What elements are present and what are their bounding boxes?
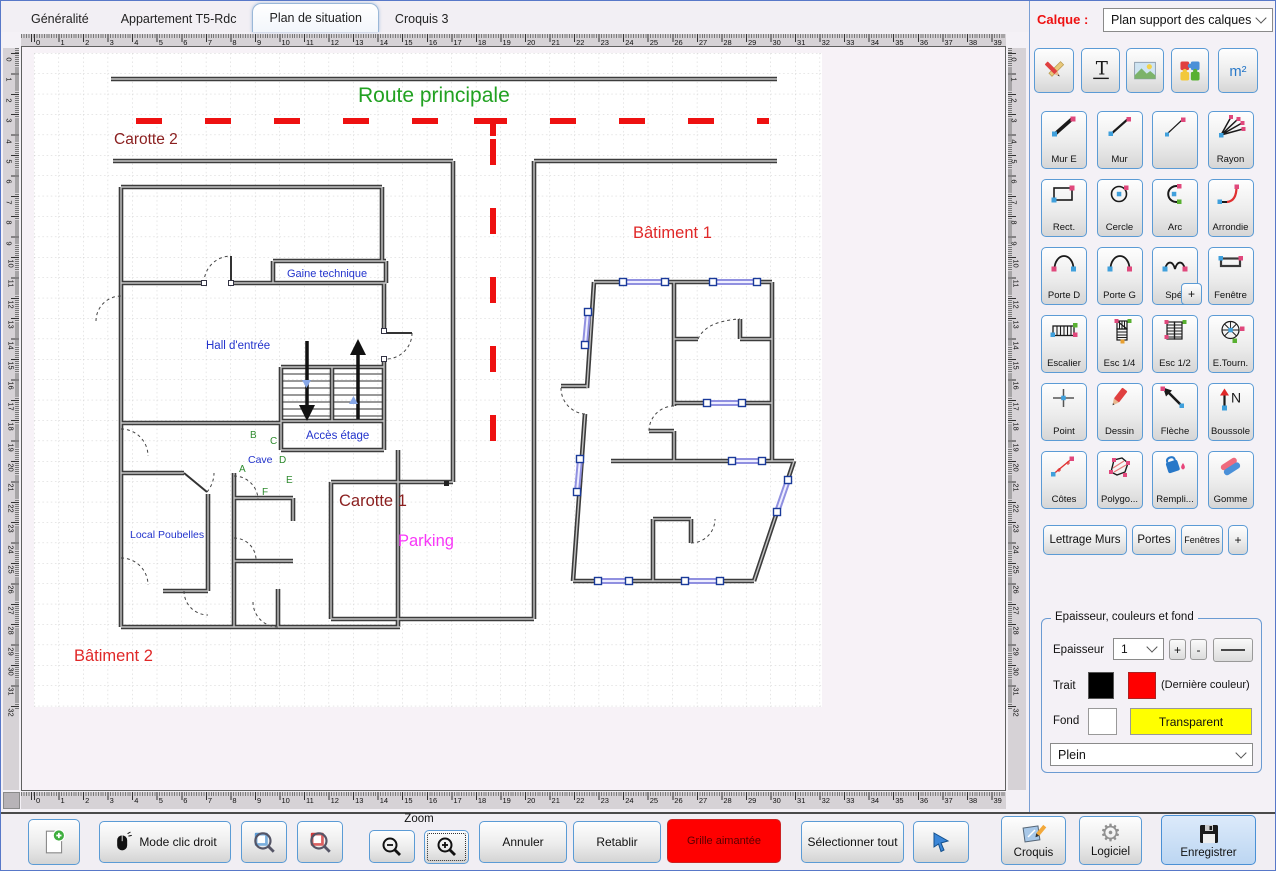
ruler-number: 16: [1012, 382, 1021, 390]
style-panel-title: Epaisseur, couleurs et fond: [1051, 611, 1198, 623]
door-left-icon: [1104, 250, 1136, 276]
ruler-number: 21: [1012, 484, 1021, 492]
stairs-quarter-icon: [1104, 318, 1136, 344]
ruler-number: 17: [453, 796, 461, 805]
tool-esc-demi[interactable]: Esc 1/2: [1152, 315, 1198, 373]
ruler-number: 28: [1012, 627, 1021, 635]
chevron-down-icon: [1255, 12, 1266, 23]
tool-label: Fenêtre: [1214, 290, 1247, 301]
ruler-number: 31: [797, 796, 805, 805]
sketch-icon: [1021, 822, 1047, 846]
tool-label: Rect.: [1053, 222, 1075, 233]
ruler-number: 27: [699, 796, 707, 805]
epaisseur-plus-button[interactable]: +: [1169, 639, 1186, 660]
text-icon: T: [1085, 58, 1117, 84]
ruler-corner: [3, 792, 20, 809]
svg-text:N: N: [1231, 390, 1241, 406]
ruler-number: 5: [5, 159, 14, 163]
ruler-number: 28: [723, 796, 731, 805]
plan-label-d[interactable]: D: [279, 455, 286, 466]
ruler-number: 30: [773, 796, 781, 805]
zoom-fit-selection-button[interactable]: [297, 821, 343, 863]
line-sample-icon: [1220, 647, 1246, 653]
annuler-button[interactable]: Annuler: [479, 821, 567, 863]
button-label: Fenêtres: [1184, 535, 1220, 545]
ruler-number: 3: [5, 119, 14, 123]
ruler-number: 13: [1012, 321, 1021, 329]
ruler-number: 15: [404, 796, 412, 805]
tool-mur-e[interactable]: Mur E: [1041, 111, 1087, 169]
plan-label-local-poubelles[interactable]: Local Poubelles: [130, 529, 204, 541]
tool-trait[interactable]: [1152, 111, 1198, 169]
svg-text:m²: m²: [1229, 64, 1246, 80]
portes-button[interactable]: Portes: [1132, 525, 1176, 555]
zoom-out-icon: [380, 835, 404, 859]
tab-label: Généralité: [31, 12, 89, 26]
ruler-number: 38: [969, 796, 977, 805]
ruler-number: 31: [7, 688, 16, 696]
trait-label: Trait: [1053, 680, 1076, 692]
ruler-number: 2: [85, 796, 89, 805]
stairs-half-icon: [1159, 318, 1191, 344]
ruler-number: 1: [5, 78, 14, 82]
ruler-number: 14: [1012, 341, 1021, 349]
tool-label: Côtes: [1052, 494, 1077, 505]
tool-label: Dessin: [1105, 426, 1134, 437]
tool-fleche[interactable]: Flèche: [1152, 383, 1198, 441]
zoom-in-button[interactable]: [424, 830, 469, 864]
ruler-number: 37: [944, 796, 952, 805]
ruler-number: 36: [920, 796, 928, 805]
ruler-number: 22: [576, 796, 584, 805]
ruler-number: 3: [1010, 119, 1019, 123]
ruler-number: 21: [7, 484, 16, 492]
fill-style-select[interactable]: Plein: [1050, 743, 1253, 766]
wall-thin-icon: [1159, 114, 1191, 140]
ruler-number: 23: [7, 525, 16, 533]
derniere-couleur-note: (Dernière couleur): [1161, 679, 1250, 691]
point-icon: [1048, 386, 1080, 412]
svg-text:T: T: [1095, 58, 1107, 79]
plus-label: +: [1188, 287, 1195, 301]
tool-porte-d[interactable]: Porte D: [1041, 247, 1087, 305]
plan-label-b[interactable]: B: [250, 430, 257, 441]
ruler-number: 18: [478, 796, 486, 805]
ruler-number: 24: [1012, 545, 1021, 553]
rectangle-icon: [1048, 182, 1080, 208]
grille-aimantee-button[interactable]: Grille aimantée: [667, 819, 781, 863]
ruler-number: 1: [61, 796, 65, 805]
trait-color-swatch[interactable]: [1088, 672, 1114, 699]
ruler-number: 30: [1012, 667, 1021, 675]
ruler-number: 34: [871, 796, 879, 805]
drawing-tools-button[interactable]: [1034, 48, 1074, 93]
ruler-number: 11: [306, 796, 314, 805]
select-cursor-button[interactable]: [913, 821, 969, 863]
ruler-number: 15: [1012, 361, 1021, 369]
button-label: Annuler: [502, 835, 543, 849]
tool-label: Boussole: [1211, 426, 1250, 437]
handle-dot: [444, 481, 449, 486]
square-meter-icon: m²: [1222, 58, 1254, 84]
drawing-canvas[interactable]: Route principaleCarotte 2Bâtiment 1Bâtim…: [21, 46, 1006, 791]
pencil-ruler-icon: [1038, 58, 1070, 84]
ruler-number: 17: [7, 402, 16, 410]
tool-label: Point: [1053, 426, 1075, 437]
ruler-number: 20: [1012, 463, 1021, 471]
zoom-in-icon: [435, 835, 459, 859]
fond-label: Fond: [1053, 715, 1079, 727]
tab-label: Croquis 3: [395, 12, 449, 26]
ruler-number: 10: [282, 796, 290, 805]
ruler-number: 16: [429, 796, 437, 805]
ruler-number: 28: [7, 627, 16, 635]
ruler-number: 7: [1010, 200, 1019, 204]
tool-label: Esc 1/4: [1104, 358, 1136, 369]
calque-select-value: Plan support des calques: [1111, 13, 1251, 27]
new-page-icon: [41, 829, 67, 855]
ruler-number: 4: [5, 139, 14, 143]
tab-appartement-t5-rdc[interactable]: Appartement T5-Rdc: [105, 6, 253, 32]
ruler-number: 11: [1011, 280, 1020, 288]
zoom-out-button[interactable]: [369, 830, 415, 863]
ruler-number: 0: [1010, 57, 1019, 61]
button-label: Mode clic droit: [139, 835, 216, 849]
bottom-toolbar: Mode clic droit: [1, 812, 1276, 871]
tool-arc[interactable]: Arc: [1152, 179, 1198, 237]
tool-label: Porte D: [1048, 290, 1080, 301]
ruler-left: 0123456789101112131415161718192021222324…: [3, 48, 19, 790]
door-right-icon: [1048, 250, 1080, 276]
ruler-number: 18: [1012, 423, 1021, 431]
ruler-number: 26: [7, 586, 16, 594]
tool-dessin[interactable]: Dessin: [1097, 383, 1143, 441]
ruler-number: 7: [208, 796, 212, 805]
tab-croquis-3[interactable]: Croquis 3: [379, 6, 465, 32]
tab-label: Appartement T5-Rdc: [121, 12, 237, 26]
polygon-icon: [1104, 454, 1136, 480]
zoom-fit-all-button[interactable]: [241, 821, 287, 863]
ruler-number: 20: [527, 796, 535, 805]
ruler-number: 3: [110, 796, 114, 805]
ruler-number: 29: [748, 796, 756, 805]
ruler-number: 2: [1010, 98, 1019, 102]
tool-boussole[interactable]: N Boussole: [1208, 383, 1254, 441]
surface-tool-button[interactable]: m²: [1218, 48, 1258, 93]
mode-clic-droit-button[interactable]: Mode clic droit: [99, 821, 231, 863]
tool-label: Flèche: [1161, 426, 1190, 437]
plus-label: +: [1174, 643, 1181, 657]
ruler-number: 20: [7, 463, 16, 471]
ruler-number: 4: [1010, 139, 1019, 143]
ruler-number: 19: [1012, 443, 1021, 451]
ruler-number: 5: [159, 796, 163, 805]
ruler-number: 17: [1012, 402, 1021, 410]
croquis-button[interactable]: Croquis: [1001, 816, 1066, 865]
ruler-number: 27: [1012, 606, 1021, 614]
ruler-number: 12: [7, 300, 16, 308]
ruler-number: 6: [1010, 180, 1019, 184]
button-label: Sélectionner tout: [807, 835, 897, 849]
tool-gomme[interactable]: Gomme: [1208, 451, 1254, 509]
epaisseur-label: Epaisseur: [1053, 644, 1104, 656]
logiciel-button[interactable]: ⚙ Logiciel: [1079, 816, 1142, 865]
transparent-label: Transparent: [1159, 715, 1223, 729]
arc-icon: [1159, 182, 1191, 208]
tool-label: Rempli...: [1156, 494, 1193, 505]
plan-label-carotte-1[interactable]: Carotte 1: [339, 492, 407, 510]
ruler-number: 1: [1010, 78, 1019, 82]
tab-bar: Généralité Appartement T5-Rdc Plan de si…: [1, 1, 1029, 32]
tool-escalier[interactable]: Escalier: [1041, 315, 1087, 373]
ruler-number: 12: [331, 796, 339, 805]
tool-rayon[interactable]: Rayon: [1208, 111, 1254, 169]
ruler-number: 23: [1012, 525, 1021, 533]
selectionner-tout-button[interactable]: Sélectionner tout: [801, 821, 904, 863]
ruler-number: 26: [1012, 586, 1021, 594]
ruler-bottom: 0123456789101112131415161718192021222324…: [21, 792, 1006, 809]
ruler-number: 14: [380, 796, 388, 805]
dimension-icon: [1048, 454, 1080, 480]
calque-label: Calque :: [1037, 12, 1088, 27]
ruler-number: 32: [822, 796, 830, 805]
plan-label-hall-d-entr-e[interactable]: Hall d'entrée: [206, 340, 270, 352]
retablir-button[interactable]: Retablir: [573, 821, 661, 863]
chevron-down-icon: [1146, 641, 1157, 652]
ruler-number: 9: [257, 796, 261, 805]
lettrage-murs-button[interactable]: Lettrage Murs: [1043, 525, 1127, 555]
ruler-number: 12: [1012, 300, 1021, 308]
button-label: Enregistrer: [1180, 847, 1236, 859]
ruler-number: 22: [1012, 504, 1021, 512]
ruler-number: 6: [183, 796, 187, 805]
ruler-number: 35: [895, 796, 903, 805]
epaisseur-select[interactable]: 1: [1113, 638, 1164, 660]
tool-escalier-tournant[interactable]: E.Tourn.: [1208, 315, 1254, 373]
plan-svg: Route principaleCarotte 2Bâtiment 1Bâtim…: [22, 47, 1005, 790]
plan-label-b-timent-1[interactable]: Bâtiment 1: [633, 224, 712, 242]
ruler-number: 29: [1012, 647, 1021, 655]
tool-esc-quart[interactable]: Esc 1/4: [1097, 315, 1143, 373]
tab-label: Plan de situation: [269, 11, 361, 25]
plan-label-gaine-technique[interactable]: Gaine technique: [287, 268, 367, 280]
tool-label: Escalier: [1047, 358, 1081, 369]
tool-label: Arc: [1168, 222, 1182, 233]
text-tool-button[interactable]: T: [1081, 48, 1120, 93]
fenetres-button[interactable]: Fenêtres: [1181, 525, 1223, 555]
ruler-number: 0: [36, 796, 40, 805]
compass-icon: N: [1215, 386, 1247, 412]
tool-label: Cercle: [1106, 222, 1133, 233]
ruler-number: 5: [1010, 159, 1019, 163]
app-window: Généralité Appartement T5-Rdc Plan de si…: [0, 0, 1276, 871]
ruler-number: 25: [650, 796, 658, 805]
ruler-number: 8: [1010, 221, 1019, 225]
grid: [34, 53, 822, 707]
ruler-number: 24: [625, 796, 633, 805]
pencil-icon: [1104, 386, 1136, 412]
plan-label-c[interactable]: C: [270, 436, 277, 447]
wall-medium-icon: [1104, 114, 1136, 140]
tool-arrondie[interactable]: Arrondie: [1208, 179, 1254, 237]
ruler-number: 13: [355, 796, 363, 805]
button-label: Croquis: [1014, 847, 1054, 859]
ruler-number: 26: [674, 796, 682, 805]
gear-icon: ⚙: [1100, 823, 1122, 845]
window-icon: [1215, 250, 1247, 276]
new-sketch-button[interactable]: [28, 819, 80, 865]
fill-bucket-icon: [1159, 454, 1191, 480]
plan-label-f[interactable]: F: [262, 487, 268, 498]
tab-plan-de-situation[interactable]: Plan de situation: [252, 3, 378, 32]
transparent-button[interactable]: Transparent: [1130, 708, 1252, 735]
ruler-number: 16: [7, 382, 16, 390]
ruler-number: 8: [232, 796, 236, 805]
calque-select[interactable]: Plan support des calques: [1103, 8, 1273, 32]
tool-polygone[interactable]: Polygo...: [1097, 451, 1143, 509]
minus-label: -: [1197, 643, 1201, 657]
ruler-number: 31: [1012, 688, 1021, 696]
tool-label: Polygo...: [1101, 494, 1138, 505]
epaisseur-value: 1: [1121, 642, 1128, 656]
tool-remplissage[interactable]: Rempli...: [1152, 451, 1198, 509]
fill-style-value: Plein: [1058, 748, 1086, 762]
ruler-right: 0123456789101112131415161718192021222324…: [1008, 48, 1026, 790]
plan-label-a[interactable]: A: [239, 464, 246, 475]
ruler-number: 29: [7, 647, 16, 655]
puzzle-icon: [1174, 58, 1206, 84]
wall-thick-icon: [1048, 114, 1080, 140]
tool-label: Porte G: [1103, 290, 1136, 301]
mouse-icon: [113, 830, 133, 854]
tool-fenetre[interactable]: Fenêtre: [1208, 247, 1254, 305]
ruler-number: 6: [5, 180, 14, 184]
tool-grid: Mur E Mur Rayon Rect. Cercle Arc Arron: [1041, 111, 1254, 509]
stairs-spiral-icon: [1215, 318, 1247, 344]
plan-label-route-principale[interactable]: Route principale: [358, 84, 510, 107]
ruler-number: 9: [5, 241, 14, 245]
button-label: Grille aimantée: [687, 835, 761, 847]
ruler-number: 8: [5, 221, 14, 225]
ruler-number: 15: [7, 361, 16, 369]
image-icon: [1129, 58, 1161, 84]
ruler-number: 39: [993, 796, 1001, 805]
panel-separator: [1029, 1, 1030, 813]
plan-label-acc-s-tage[interactable]: Accès étage: [306, 430, 369, 442]
cursor-arrow-icon: [929, 830, 953, 854]
ruler-number: 13: [7, 321, 16, 329]
circle-icon: [1104, 182, 1136, 208]
tab-generalite[interactable]: Généralité: [15, 6, 105, 32]
tool-label: Gomme: [1214, 494, 1248, 505]
tool-label: Esc 1/2: [1159, 358, 1191, 369]
tool-label: Mur E: [1051, 154, 1076, 165]
ruler-number: 7: [5, 200, 14, 204]
ruler-number: 19: [502, 796, 510, 805]
button-label: Portes: [1137, 534, 1170, 546]
plan-label-e[interactable]: E: [286, 475, 293, 486]
ruler-number: 23: [601, 796, 609, 805]
plan-label-cave[interactable]: Cave: [248, 454, 273, 466]
tool-label: Arrondie: [1213, 222, 1249, 233]
ruler-number: 10: [1012, 259, 1021, 267]
tool-label: Rayon: [1217, 154, 1244, 165]
tool-cotes[interactable]: Côtes: [1041, 451, 1087, 509]
ruler-number: 30: [7, 667, 16, 675]
plan-label-b-timent-2[interactable]: Bâtiment 2: [74, 647, 153, 665]
ruler-number: 32: [1012, 708, 1021, 716]
tool-rect[interactable]: Rect.: [1041, 179, 1087, 237]
tool-cercle[interactable]: Cercle: [1097, 179, 1143, 237]
floppy-disk-icon: [1197, 822, 1221, 846]
tool-mur[interactable]: Mur: [1097, 111, 1143, 169]
arrow-icon: [1159, 386, 1191, 412]
ruler-number: 25: [1012, 565, 1021, 573]
ruler-number: 14: [7, 341, 16, 349]
rays-icon: [1215, 114, 1247, 140]
modules-button[interactable]: [1171, 48, 1209, 93]
ruler-number: 27: [7, 606, 16, 614]
zoom-section-label: Zoom: [394, 813, 444, 825]
zoom-fit-blue-icon: [251, 829, 277, 855]
enregistrer-button[interactable]: Enregistrer: [1161, 815, 1256, 865]
tool-label: E.Tourn.: [1213, 358, 1248, 369]
ruler-number: 33: [846, 796, 854, 805]
button-label: Lettrage Murs: [1050, 534, 1121, 546]
epaisseur-minus-button[interactable]: -: [1190, 639, 1207, 660]
stairs-icon: [1048, 318, 1080, 344]
spe-plus-button[interactable]: +: [1181, 283, 1202, 305]
ruler-number: 21: [552, 796, 560, 805]
button-label: Retablir: [596, 835, 637, 849]
button-label: Logiciel: [1091, 846, 1130, 858]
tool-porte-g[interactable]: Porte G: [1097, 247, 1143, 305]
ruler-number: 2: [5, 98, 14, 102]
ruler-number: 19: [7, 443, 16, 451]
rounded-corner-icon: [1215, 182, 1247, 208]
ruler-number: 4: [134, 796, 138, 805]
shortcut-plus-button[interactable]: +: [1228, 525, 1248, 555]
ruler-number: 10: [7, 259, 16, 267]
plan-label-carotte-2[interactable]: Carotte 2: [114, 131, 178, 148]
ruler-number: 9: [1010, 241, 1019, 245]
plan-label-parking[interactable]: Parking: [398, 532, 454, 550]
last-color-swatch[interactable]: [1128, 672, 1156, 699]
line-style-button[interactable]: [1213, 638, 1253, 662]
ruler-number: 11: [6, 280, 15, 288]
zoom-fit-red-icon: [307, 829, 333, 855]
tool-point[interactable]: Point: [1041, 383, 1087, 441]
ruler-number: 0: [5, 57, 14, 61]
ruler-number: 22: [7, 504, 16, 512]
eraser-icon: [1215, 454, 1247, 480]
ruler-number: 32: [7, 708, 16, 716]
ruler-number: 24: [7, 545, 16, 553]
button-label: +: [1234, 533, 1241, 547]
ruler-number: 18: [7, 423, 16, 431]
chevron-down-icon: [1235, 747, 1246, 758]
tool-label: Mur: [1111, 154, 1127, 165]
image-tool-button[interactable]: [1126, 48, 1164, 93]
door-special-icon: [1159, 250, 1191, 276]
ruler-number: 25: [7, 565, 16, 573]
fond-color-swatch[interactable]: [1088, 708, 1117, 735]
